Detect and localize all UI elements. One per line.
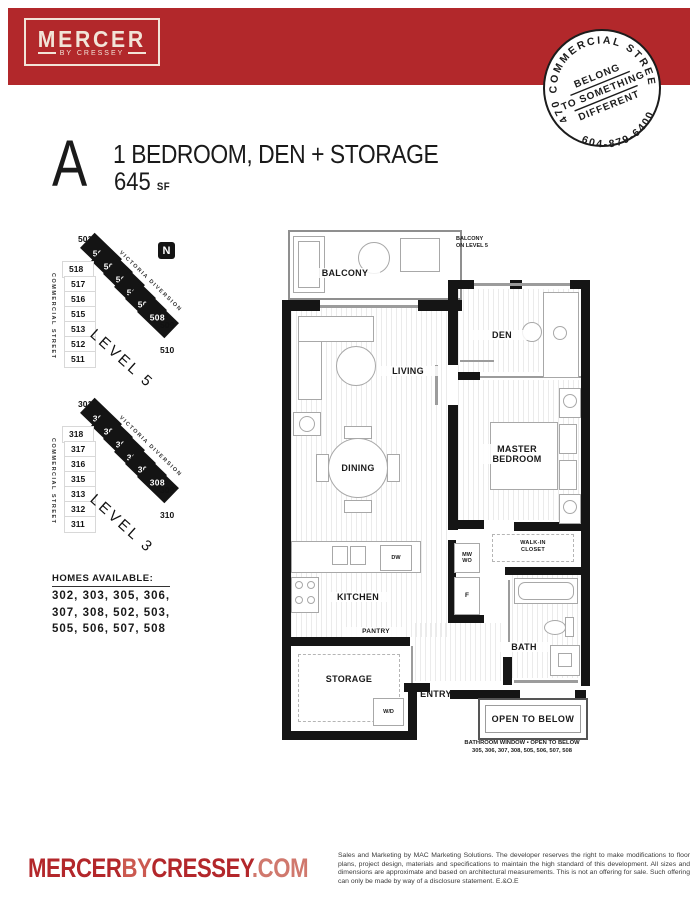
street-commercial: COMMERCIAL STREET — [50, 273, 56, 360]
toilet-tank — [565, 617, 574, 637]
logo-name: MERCER — [38, 28, 146, 50]
unit-label: 316 — [71, 459, 85, 469]
burner — [307, 596, 315, 604]
bathtub-basin — [518, 582, 574, 600]
brand-mercer: MERCER — [28, 853, 121, 883]
plan-letter: A — [52, 130, 87, 196]
level-label: LEVEL 3 — [87, 491, 158, 557]
microwave-wall-oven: MW WO — [454, 543, 480, 573]
street-commercial: COMMERCIAL STREET — [50, 438, 56, 525]
open-to-below: OPEN TO BELOW — [478, 698, 588, 740]
balcony-label: BALCONY — [310, 268, 380, 278]
den-window — [474, 283, 570, 286]
level-label: LEVEL 5 — [87, 326, 158, 392]
burner — [307, 581, 315, 589]
unit-label: 318 — [69, 429, 83, 439]
pantry-label: PANTRY — [346, 627, 406, 637]
lounge-chair-cushion — [298, 241, 320, 288]
storage-opening-line — [411, 646, 413, 683]
table-lamp — [299, 416, 315, 432]
wall-living-master — [448, 405, 458, 530]
plan-title: 1 BEDROOM, DEN + STORAGE — [113, 139, 438, 170]
floorplan-footnote: BATHROOM WINDOW • OPEN TO BELOW 305, 306… — [442, 740, 602, 755]
mercer-logo: MERCER BY CRESSEY — [24, 18, 160, 66]
unit-label: 311 — [71, 519, 85, 529]
wo-label: WO — [462, 558, 471, 564]
den-label: DEN — [472, 330, 532, 340]
balcony-chair — [400, 238, 440, 272]
plan-area: 645 SF — [114, 168, 170, 197]
sink-basin — [332, 546, 348, 565]
walkin-label-line2: CLOSET — [498, 547, 568, 554]
website-wordmark: MERCERBYCRESSEY.COM — [28, 853, 308, 884]
unit-label: 516 — [71, 294, 85, 304]
washer-dryer: W/D — [373, 698, 404, 726]
bath-window — [514, 680, 578, 683]
master-label-line2: BEDROOM — [482, 454, 552, 464]
brand-cressey: CRESSEY — [151, 853, 252, 883]
den-shelf — [460, 360, 494, 362]
unit-label: 518 — [69, 264, 83, 274]
brochure-page: MERCER BY CRESSEY 3470 COMMERCIAL STREET… — [0, 0, 695, 899]
homes-available-line: 302, 303, 305, 306, — [52, 589, 170, 604]
balcony-door-window — [320, 305, 418, 308]
bath-label: BATH — [498, 642, 550, 652]
wall-below-fridge — [448, 615, 484, 623]
entry-floor — [415, 623, 505, 681]
wall — [282, 300, 320, 311]
dining-label: DINING — [328, 463, 388, 473]
wall-den-top — [458, 280, 474, 289]
unit-label: 312 — [71, 504, 85, 514]
nightstand-lamp — [563, 500, 577, 514]
living-label: LIVING — [378, 366, 438, 376]
dining-chair — [387, 454, 400, 482]
plan-area-value: 645 — [114, 168, 151, 196]
fridge: F — [454, 577, 480, 615]
sofa-seat — [298, 316, 374, 342]
brand-dotcom: .COM — [252, 853, 308, 883]
toilet-bowl — [544, 620, 566, 635]
wall-kitchen-storage — [282, 637, 410, 646]
footnote-line2: 305, 306, 307, 308, 505, 506, 507, 508 — [442, 748, 602, 756]
wall-storage-bottom — [282, 731, 417, 740]
keyplan-level3: 301 VICTORIA DIVERSION 302 303 305 306 3… — [32, 393, 217, 553]
wall-master-bottom — [448, 520, 484, 529]
burner — [295, 596, 303, 604]
unit-label: 310 — [160, 510, 174, 520]
master-label-line1: MASTER — [482, 444, 552, 454]
brand-by: BY — [121, 853, 151, 883]
wall-bath-left — [503, 657, 512, 685]
bath-door-leaf — [508, 580, 510, 642]
burner — [295, 581, 303, 589]
address-stamp: 3470 COMMERCIAL STREET 604-879-6400 BELO… — [526, 18, 678, 160]
floorplan: BALCONY BALCONY ON LEVEL 5 — [282, 228, 612, 768]
footnote-line1: BATHROOM WINDOW • OPEN TO BELOW — [442, 740, 602, 748]
unit-label: 309 — [160, 485, 174, 495]
keyplan-level5: N 501 VICTORIA DIVERSION 502 503 505 506… — [32, 228, 217, 388]
north-arrow-icon: N — [158, 242, 175, 259]
area-rug — [336, 346, 376, 386]
nightstand-lamp — [563, 394, 577, 408]
balcony-note: BALCONY ON LEVEL 5 — [456, 236, 516, 249]
open-to-below-label: OPEN TO BELOW — [485, 705, 580, 732]
pillow — [559, 424, 577, 454]
pillow — [559, 460, 577, 490]
wall-right — [581, 280, 590, 686]
plan-area-unit: SF — [157, 181, 170, 193]
legal-disclaimer: Sales and Marketing by MAC Marketing Sol… — [338, 852, 690, 886]
balcony-note-line2: ON LEVEL 5 — [456, 243, 516, 250]
unit-label: 509 — [160, 320, 174, 330]
unit-label: 513 — [71, 324, 85, 334]
wall-left — [282, 311, 291, 740]
homes-available-line: 307, 308, 502, 503, — [52, 606, 170, 621]
storage-label: STORAGE — [314, 674, 384, 684]
dining-chair — [344, 500, 372, 513]
unit-label: 313 — [71, 489, 85, 499]
homes-available: HOMES AVAILABLE: 302, 303, 305, 306, 307… — [52, 568, 170, 637]
walkin-closet-label: WALK-IN CLOSET — [498, 540, 568, 553]
desk-lamp — [553, 326, 567, 340]
wall-living-den — [448, 280, 458, 365]
homes-available-line: 505, 506, 507, 508 — [52, 622, 170, 637]
unit-label: 511 — [71, 354, 85, 364]
kitchen-label: KITCHEN — [328, 592, 388, 602]
dining-chair — [344, 426, 372, 439]
entry-label: ENTRY — [408, 689, 464, 699]
unit-label: 510 — [160, 345, 174, 355]
unit-label: 315 — [71, 474, 85, 484]
unit-label: 517 — [71, 279, 85, 289]
unit-label: 512 — [71, 339, 85, 349]
vanity-sink — [558, 653, 572, 667]
unit-label: 515 — [71, 309, 85, 319]
wall-den-master — [458, 372, 480, 380]
homes-available-heading: HOMES AVAILABLE: — [52, 573, 170, 587]
dishwasher: DW — [380, 545, 412, 571]
unit-label: 317 — [71, 444, 85, 454]
sink-basin — [350, 546, 366, 565]
master-bedroom-label: MASTER BEDROOM — [482, 444, 552, 464]
wall-closet-bath — [505, 567, 583, 575]
